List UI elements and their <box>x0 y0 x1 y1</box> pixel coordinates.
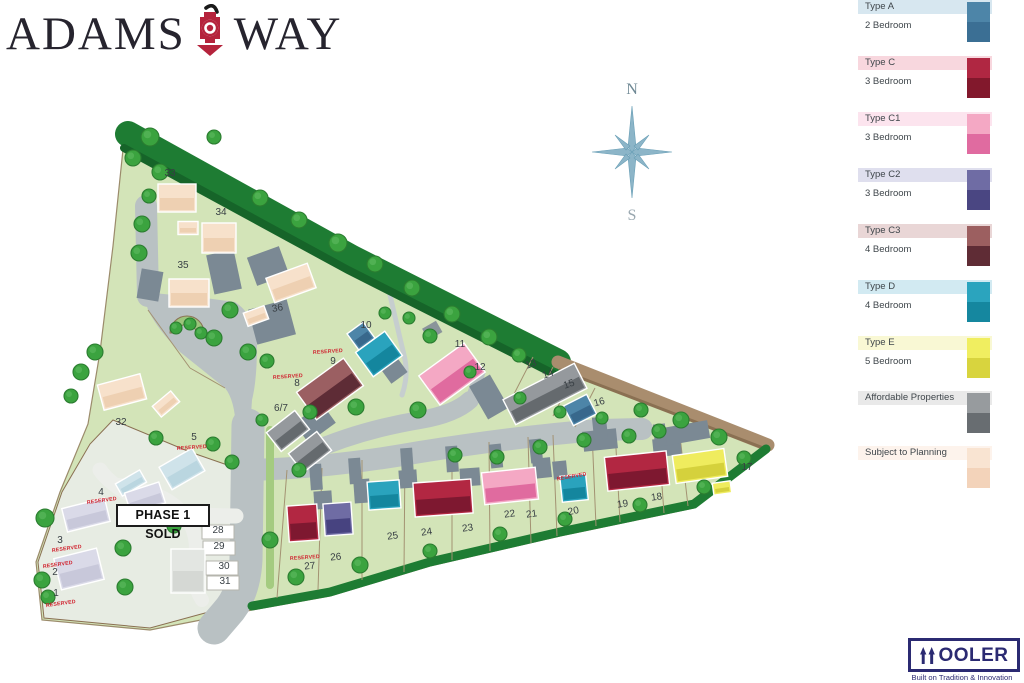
legend-item: Type C23 Bedroom <box>858 168 992 182</box>
tree <box>448 448 462 462</box>
legend-item: Type C13 Bedroom <box>858 112 992 126</box>
tree <box>673 412 689 428</box>
plot-number-26: 26 <box>330 552 342 564</box>
house-type-D <box>367 480 401 510</box>
house-type-STP <box>202 223 236 253</box>
plot-number-9: 9 <box>330 356 336 367</box>
plot-number-10: 10 <box>360 320 372 331</box>
tree <box>444 306 460 322</box>
tree <box>512 348 526 362</box>
tree <box>379 307 391 319</box>
tree <box>64 389 78 403</box>
wooler-w-icon <box>919 647 938 664</box>
tree <box>131 245 147 261</box>
plot-number-22: 22 <box>503 508 516 521</box>
driveway-pad <box>400 448 414 475</box>
legend-swatch <box>967 114 990 154</box>
tree <box>697 480 711 494</box>
tree <box>490 450 504 464</box>
legend-item: Subject to Planning <box>858 446 992 460</box>
tree <box>36 509 54 527</box>
tree <box>207 130 221 144</box>
house-type-C <box>413 479 473 517</box>
tree <box>262 532 278 548</box>
legend-swatch <box>967 282 990 322</box>
tree <box>260 354 274 368</box>
tree <box>252 190 268 206</box>
legend-swatch <box>967 448 990 488</box>
tree <box>554 406 566 418</box>
legend-bedrooms: 4 Bedroom <box>865 244 911 255</box>
legend-swatch <box>967 58 990 98</box>
driveway-pad <box>348 458 362 485</box>
plot-number-11: 11 <box>455 339 466 350</box>
tree <box>423 544 437 558</box>
plot-number-12: 12 <box>474 362 486 373</box>
tree <box>493 527 507 541</box>
site-plan-page: { "brand": {"word1": "ADAMS", "word2": "… <box>0 0 1024 683</box>
logo-word-adams: ADAMS <box>6 6 186 62</box>
legend-bedrooms: 3 Bedroom <box>865 132 911 143</box>
legend-bedrooms: 3 Bedroom <box>865 188 911 199</box>
tree <box>222 302 238 318</box>
house-type-E <box>712 481 731 495</box>
tree <box>533 440 547 454</box>
tree <box>652 424 666 438</box>
plot-number-5: 5 <box>191 432 197 443</box>
legend-swatch <box>967 338 990 378</box>
legend-swatch <box>967 393 990 433</box>
tree <box>73 364 89 380</box>
plot-number-24: 24 <box>420 526 433 539</box>
legend-swatch <box>967 226 990 266</box>
tree <box>622 429 636 443</box>
compass-north: N <box>626 81 638 98</box>
plot-number-27: 27 <box>304 561 316 573</box>
plot-number-21: 21 <box>525 508 538 521</box>
plot-number-6-7: 6/7 <box>274 403 288 414</box>
house-type-C <box>287 504 319 542</box>
plot-number-31: 31 <box>219 576 231 587</box>
house-type-C1 <box>481 467 538 504</box>
house-type-STP <box>178 222 198 235</box>
tree <box>577 433 591 447</box>
builder-tagline: Built on Tradition & Innovation <box>903 673 1021 682</box>
tree <box>125 150 141 166</box>
tree <box>348 399 364 415</box>
plot-number-33: 33 <box>164 168 176 179</box>
tree <box>149 431 163 445</box>
tree <box>514 392 526 404</box>
plot-number-4: 4 <box>98 487 104 498</box>
plot-number-30: 30 <box>218 561 230 572</box>
legend-item: Type C34 Bedroom <box>858 224 992 238</box>
tree <box>404 280 420 296</box>
tree <box>87 344 103 360</box>
tree <box>303 405 317 419</box>
legend-bedrooms: 2 Bedroom <box>865 20 911 31</box>
phase1-sold-banner: PHASE 1 SOLD <box>116 504 210 527</box>
legend-item: Type E5 Bedroom <box>858 336 992 350</box>
tree <box>633 498 647 512</box>
tree <box>170 322 182 334</box>
tree <box>634 403 648 417</box>
legend: Type A2 BedroomType C3 BedroomType C13 B… <box>858 0 992 500</box>
driveway-pad <box>309 464 323 491</box>
tree <box>329 234 347 252</box>
legend-swatch <box>967 170 990 210</box>
tree <box>134 216 150 232</box>
tree <box>288 569 304 585</box>
plot-number-17: 17 <box>741 462 753 473</box>
house-type-C2 <box>323 502 353 536</box>
tree <box>410 402 426 418</box>
legend-bedrooms: 5 Bedroom <box>865 356 911 367</box>
builder-logo: OOLER <box>908 638 1020 672</box>
legend-swatch <box>967 2 990 42</box>
tree <box>403 312 415 324</box>
tree <box>240 344 256 360</box>
tree <box>206 437 220 451</box>
plot-number-18: 18 <box>650 491 663 504</box>
plot-number-1: 1 <box>53 588 59 599</box>
plot-number-25: 25 <box>386 530 399 543</box>
plot-number-34: 34 <box>215 207 227 218</box>
legend-item: Type C3 Bedroom <box>858 56 992 70</box>
compass-south: S <box>628 207 637 224</box>
builder-name: OOLER <box>938 646 1008 665</box>
legend-bedrooms: 3 Bedroom <box>865 76 911 87</box>
logo-word-way: WAY <box>234 6 343 62</box>
compass: N S <box>592 81 672 224</box>
plot-number-19: 19 <box>616 498 629 511</box>
tree <box>195 327 207 339</box>
tree <box>292 463 306 477</box>
plot-number-3: 3 <box>57 535 63 546</box>
plot-number-28: 28 <box>212 525 224 536</box>
tree <box>423 329 437 343</box>
railway-lamp-icon <box>192 4 228 62</box>
plot-number-32: 32 <box>115 417 127 428</box>
legend-item: Type A2 Bedroom <box>858 0 992 14</box>
plot-number-35: 35 <box>177 260 189 271</box>
tree <box>34 572 50 588</box>
legend-item: Type D4 Bedroom <box>858 280 992 294</box>
legend-bedrooms: 4 Bedroom <box>865 300 911 311</box>
tree <box>206 330 222 346</box>
plot-number-29: 29 <box>213 541 225 552</box>
tree <box>142 189 156 203</box>
development-logo: ADAMS WAY <box>6 4 343 64</box>
plot-number-23: 23 <box>461 522 474 535</box>
tree <box>115 540 131 556</box>
house-type-STP <box>169 279 209 307</box>
house-type-STP <box>158 184 196 212</box>
tree <box>711 429 727 445</box>
tree <box>225 455 239 469</box>
tree <box>256 414 268 426</box>
tree <box>141 128 159 146</box>
tree <box>291 212 307 228</box>
tree <box>367 256 383 272</box>
legend-item: Affordable Properties <box>858 391 992 405</box>
plot-number-8: 8 <box>294 378 300 389</box>
tree <box>184 318 196 330</box>
tree <box>117 579 133 595</box>
tree <box>596 412 608 424</box>
house-type-C <box>604 451 669 491</box>
tree <box>481 329 497 345</box>
tree <box>352 557 368 573</box>
house-type-P1G <box>171 549 205 593</box>
